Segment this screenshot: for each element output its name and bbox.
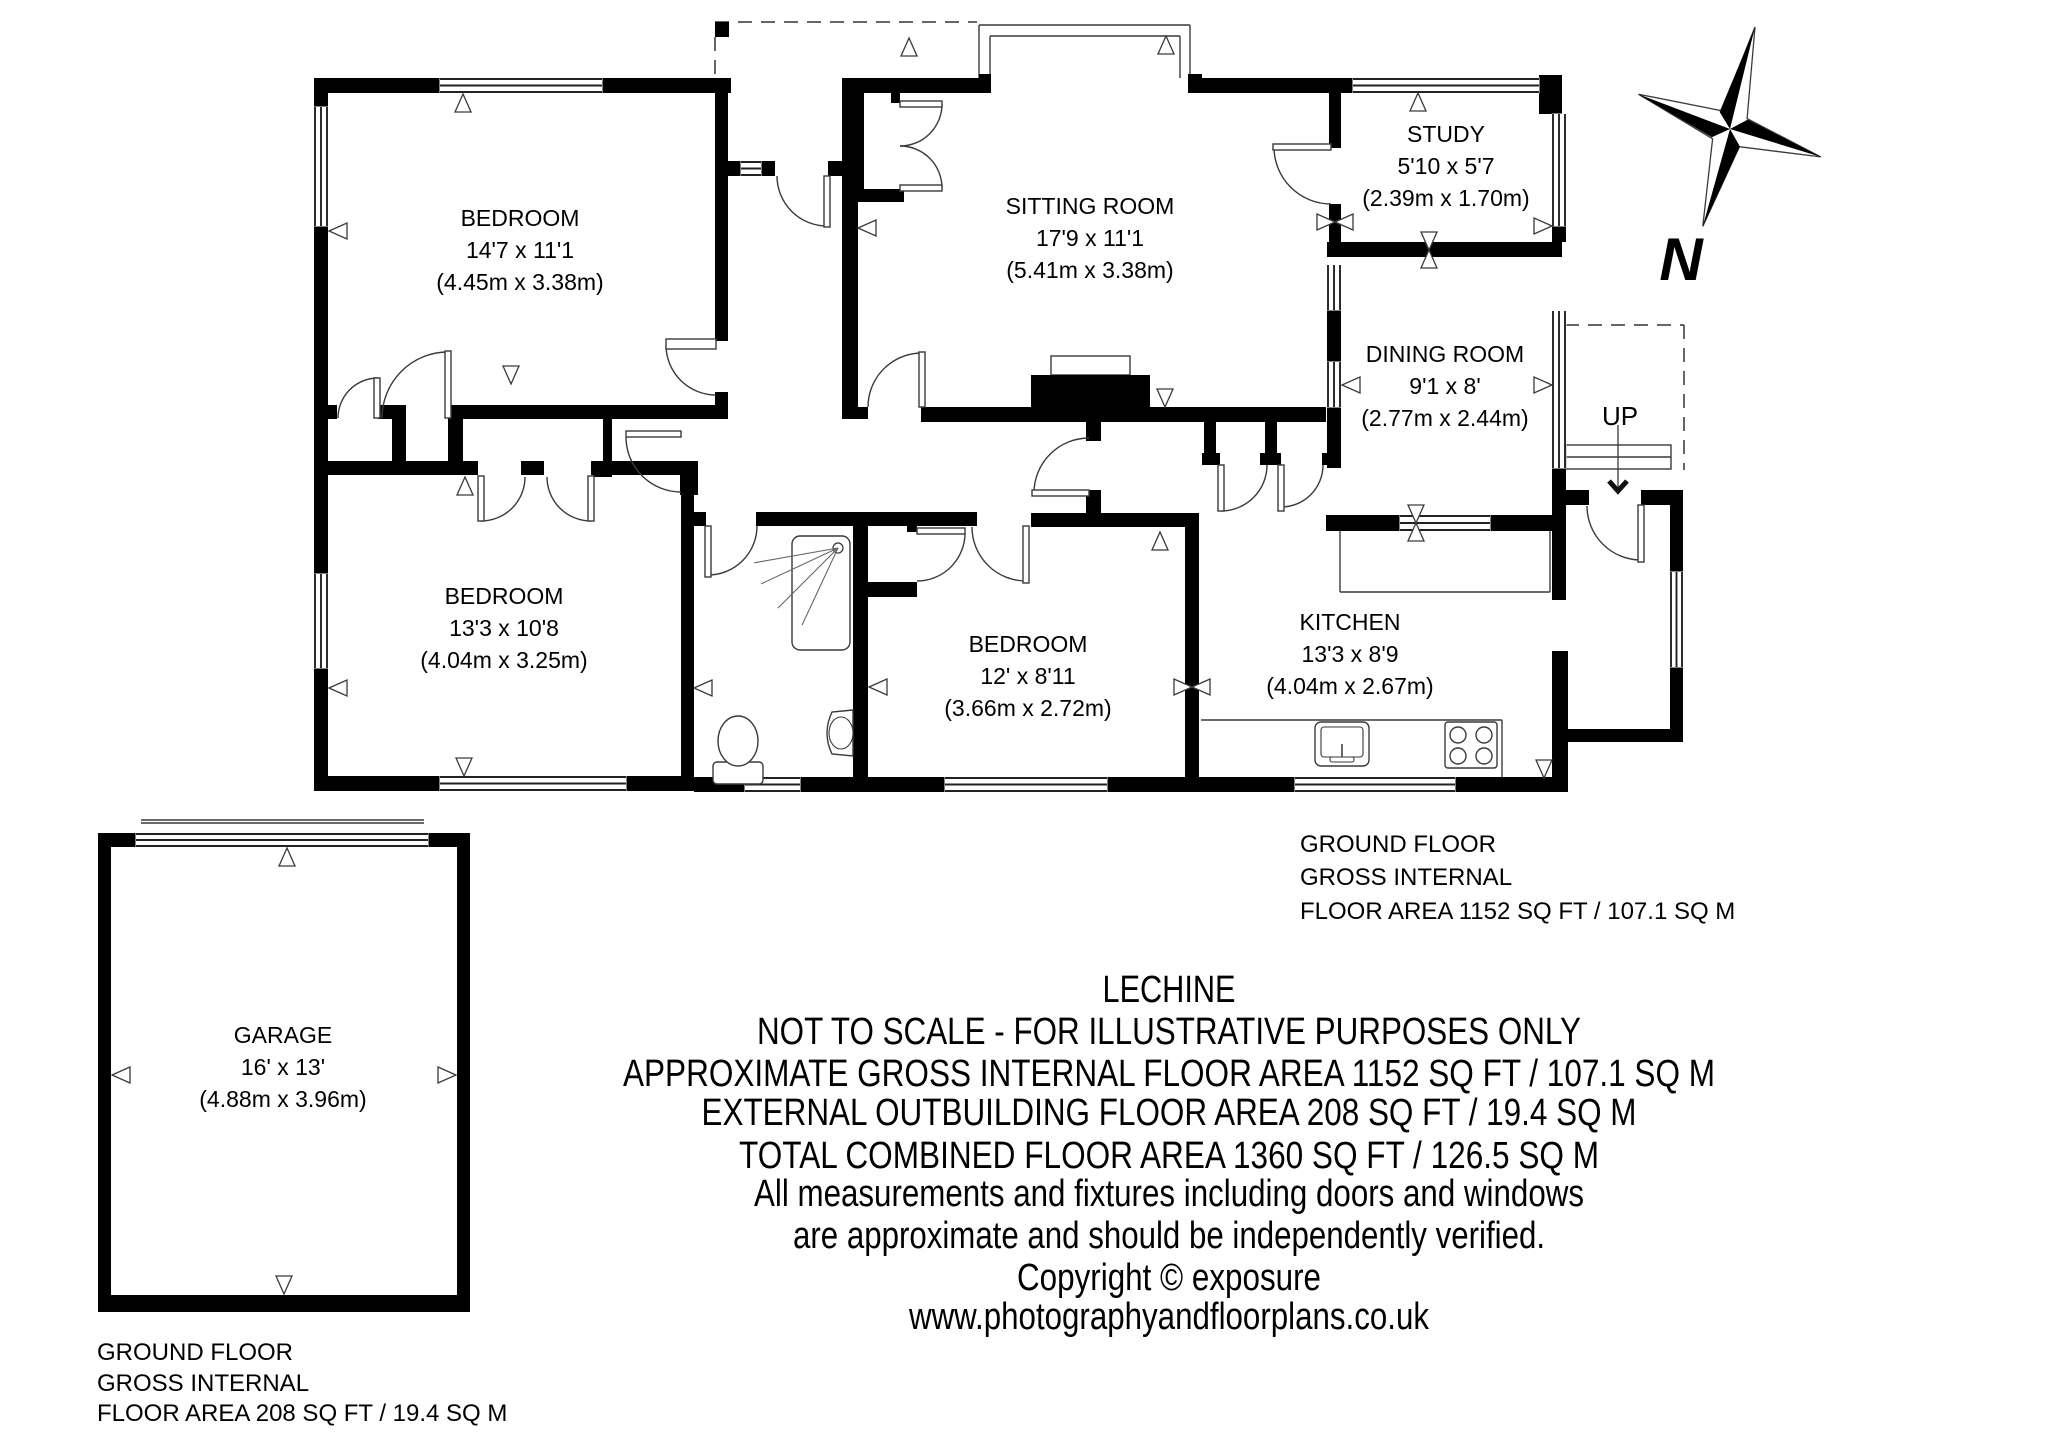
svg-text:GROUND FLOOR: GROUND FLOOR bbox=[97, 1339, 293, 1366]
svg-text:TOTAL COMBINED FLOOR AREA 1360: TOTAL COMBINED FLOOR AREA 1360 SQ FT / 1… bbox=[739, 1135, 1599, 1177]
svg-text:13'3 x 10'8: 13'3 x 10'8 bbox=[449, 615, 559, 641]
svg-text:DINING ROOM: DINING ROOM bbox=[1366, 341, 1524, 367]
svg-text:(3.66m x 2.72m): (3.66m x 2.72m) bbox=[944, 695, 1111, 721]
svg-text:5'10 x 5'7: 5'10 x 5'7 bbox=[1397, 153, 1494, 179]
svg-text:(4.45m x 3.38m): (4.45m x 3.38m) bbox=[436, 269, 603, 295]
svg-text:GROUND FLOOR: GROUND FLOOR bbox=[1300, 831, 1496, 858]
svg-text:9'1 x 8': 9'1 x 8' bbox=[1409, 373, 1480, 399]
svg-text:www.photographyandfloorplans.c: www.photographyandfloorplans.co.uk bbox=[908, 1296, 1430, 1338]
svg-text:LECHINE: LECHINE bbox=[1103, 969, 1236, 1011]
svg-text:(4.04m x 2.67m): (4.04m x 2.67m) bbox=[1266, 673, 1433, 699]
svg-text:NOT TO SCALE - FOR ILLUSTRATIV: NOT TO SCALE - FOR ILLUSTRATIVE PURPOSES… bbox=[757, 1011, 1581, 1053]
svg-text:APPROXIMATE GROSS INTERNAL FLO: APPROXIMATE GROSS INTERNAL FLOOR AREA 11… bbox=[623, 1053, 1715, 1095]
svg-text:BEDROOM: BEDROOM bbox=[969, 631, 1088, 657]
svg-text:EXTERNAL OUTBUILDING FLOOR ARE: EXTERNAL OUTBUILDING FLOOR AREA 208 SQ F… bbox=[702, 1092, 1637, 1134]
svg-text:UP: UP bbox=[1602, 401, 1638, 431]
svg-text:12' x 8'11: 12' x 8'11 bbox=[980, 663, 1075, 689]
svg-text:FLOOR AREA 208 SQ FT / 19.4 SQ: FLOOR AREA 208 SQ FT / 19.4 SQ M bbox=[97, 1400, 507, 1427]
svg-text:STUDY: STUDY bbox=[1407, 121, 1485, 147]
svg-text:are approximate and should be: are approximate and should be independen… bbox=[793, 1215, 1545, 1257]
svg-text:All measurements and fixtures: All measurements and fixtures including … bbox=[754, 1173, 1584, 1215]
svg-text:N: N bbox=[1659, 226, 1704, 293]
svg-text:14'7 x 11'1: 14'7 x 11'1 bbox=[466, 237, 574, 263]
svg-text:(2.77m x 2.44m): (2.77m x 2.44m) bbox=[1361, 405, 1528, 431]
svg-text:16' x 13': 16' x 13' bbox=[241, 1054, 325, 1080]
svg-text:GARAGE: GARAGE bbox=[234, 1022, 332, 1048]
svg-text:Copyright © exposure: Copyright © exposure bbox=[1017, 1257, 1321, 1299]
svg-text:GROSS INTERNAL: GROSS INTERNAL bbox=[97, 1370, 309, 1397]
svg-text:(5.41m x 3.38m): (5.41m x 3.38m) bbox=[1006, 257, 1173, 283]
svg-text:(4.04m x 3.25m): (4.04m x 3.25m) bbox=[420, 647, 587, 673]
svg-text:KITCHEN: KITCHEN bbox=[1300, 609, 1401, 635]
svg-text:(4.88m x 3.96m): (4.88m x 3.96m) bbox=[199, 1086, 366, 1112]
svg-text:BEDROOM: BEDROOM bbox=[461, 205, 580, 231]
svg-text:BEDROOM: BEDROOM bbox=[445, 583, 564, 609]
svg-text:(2.39m x 1.70m): (2.39m x 1.70m) bbox=[1362, 185, 1529, 211]
svg-text:17'9 x 11'1: 17'9 x 11'1 bbox=[1036, 225, 1144, 251]
svg-text:13'3 x 8'9: 13'3 x 8'9 bbox=[1301, 641, 1398, 667]
svg-text:GROSS INTERNAL: GROSS INTERNAL bbox=[1300, 864, 1512, 891]
svg-text:FLOOR AREA 1152 SQ FT / 107.1: FLOOR AREA 1152 SQ FT / 107.1 SQ M bbox=[1300, 898, 1735, 925]
svg-text:SITTING ROOM: SITTING ROOM bbox=[1006, 193, 1175, 219]
